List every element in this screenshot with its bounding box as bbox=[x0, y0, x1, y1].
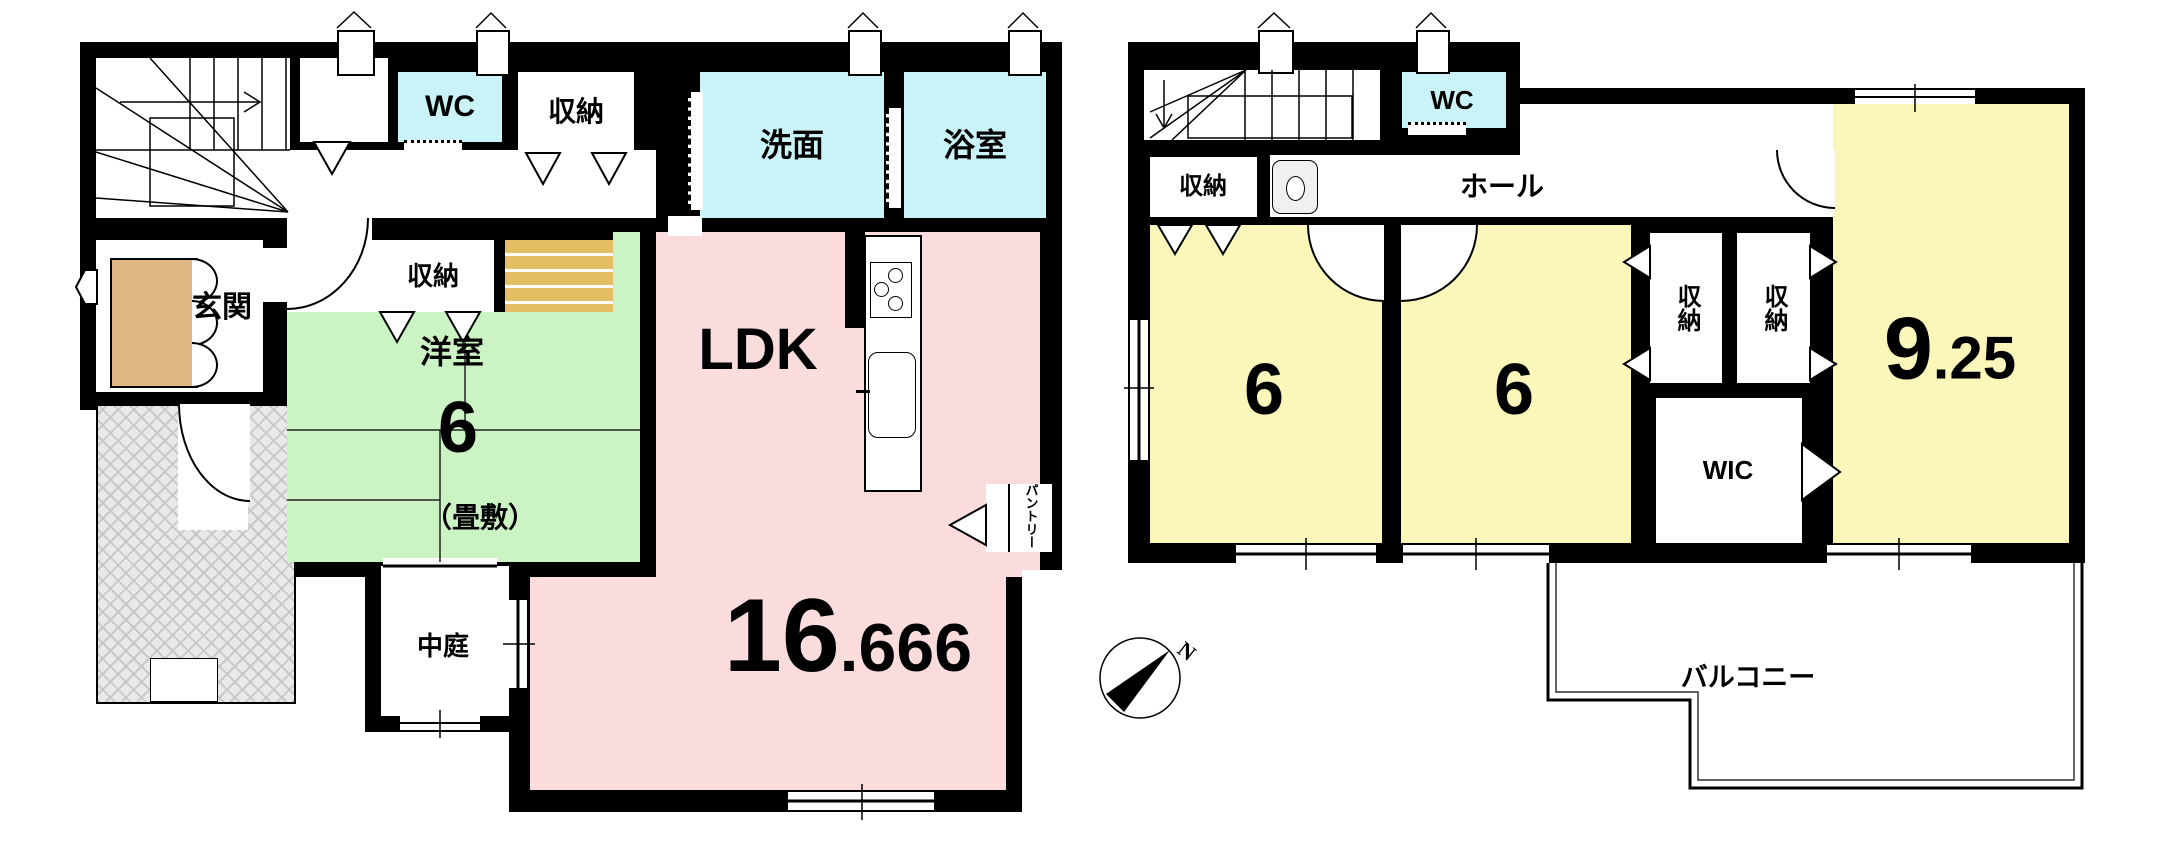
wc-2f-accordion-door bbox=[1408, 122, 1466, 135]
window-925-top bbox=[1855, 90, 1975, 104]
exterior-cut-1f-bottom-right bbox=[1022, 570, 1062, 812]
staircase-2f bbox=[1144, 70, 1380, 140]
stove-burner-icon bbox=[888, 268, 903, 283]
vent-bump bbox=[1008, 30, 1042, 76]
label-ldk: LDK bbox=[698, 321, 817, 379]
sink-faucet-icon bbox=[856, 390, 870, 393]
label-ldk-size: 16.666 bbox=[724, 584, 972, 688]
kitchen-sink-icon bbox=[868, 352, 916, 438]
label-courtyard: 中庭 bbox=[417, 633, 469, 659]
label-room925-size: 9.25 bbox=[1884, 304, 2016, 392]
kitchen-wall-stub bbox=[845, 218, 865, 328]
compass-north-label: N bbox=[1173, 636, 1201, 666]
hall-2f bbox=[1320, 155, 1833, 217]
washbasin-bowl-icon bbox=[1286, 176, 1305, 201]
label-pantry: パントリー bbox=[1025, 484, 1038, 549]
label-wc-2f: WC bbox=[1430, 87, 1473, 113]
label-tatami-note: （畳敷） bbox=[424, 504, 536, 532]
label-entrance: 玄関 bbox=[192, 293, 252, 323]
label-closet-b-2f: 収納 bbox=[1761, 284, 1785, 332]
label-tatami-room: 洋室 bbox=[420, 336, 484, 368]
window-tatami-courtyard bbox=[383, 558, 497, 574]
label-closet-2f: 収納 bbox=[1179, 175, 1227, 199]
window-2f-left-wall bbox=[1130, 320, 1148, 460]
ldk-size-fraction: .666 bbox=[840, 614, 972, 682]
window-ldk-bottom bbox=[788, 792, 934, 810]
room925-size-fraction: .25 bbox=[1933, 328, 2016, 388]
label-room6b-size: 6 bbox=[1494, 354, 1534, 426]
shoe-cabinet bbox=[110, 258, 198, 388]
hallway-1f bbox=[96, 150, 656, 218]
room925-size-integer: 9 bbox=[1884, 304, 1933, 392]
vent-bump bbox=[1416, 30, 1450, 74]
label-tatami-size: 6 bbox=[438, 392, 478, 464]
vent-bump bbox=[848, 30, 882, 76]
tatami-step-strip bbox=[505, 240, 613, 312]
floor-plan: N WC 収納 洗面 浴室 玄関 収納 洋室 6 （畳敷） LDK 16.666… bbox=[0, 0, 2183, 854]
window-room6a-bottom bbox=[1236, 545, 1376, 563]
window-courtyard-bottom bbox=[400, 716, 480, 730]
label-wc-1f: WC bbox=[425, 92, 475, 122]
label-wic: WIC bbox=[1703, 457, 1754, 483]
vent-caret bbox=[337, 12, 1446, 28]
pantry-shelf-line bbox=[1008, 484, 1010, 552]
wc-1f-accordion-door bbox=[404, 140, 462, 153]
hall-to-ldk-opening bbox=[668, 216, 702, 236]
label-closet-a-2f: 収納 bbox=[1674, 284, 1698, 332]
label-hall-2f: ホール bbox=[1460, 173, 1544, 201]
washroom-sliding-door bbox=[688, 92, 703, 210]
window-room6b-bottom bbox=[1403, 545, 1549, 563]
label-closet-a-1f: 収納 bbox=[548, 98, 604, 126]
porch-step-notch bbox=[150, 658, 218, 702]
ldk-size-integer: 16 bbox=[724, 584, 840, 688]
label-room6a-size: 6 bbox=[1244, 354, 1284, 426]
bathroom-sliding-door bbox=[886, 108, 901, 208]
compass-icon: N bbox=[1100, 636, 1201, 718]
label-balcony: バルコニー bbox=[1681, 665, 1815, 692]
window-courtyard-right bbox=[509, 600, 527, 688]
entrance-doorway-gap bbox=[263, 248, 287, 302]
room-tatami-upper-sliver bbox=[613, 232, 640, 312]
label-bathroom: 浴室 bbox=[943, 129, 1007, 161]
vent-bump bbox=[476, 30, 510, 76]
stove-burner-icon bbox=[874, 282, 889, 297]
label-washroom: 洗面 bbox=[760, 129, 824, 161]
vent-bump bbox=[337, 30, 375, 76]
vent-bump bbox=[1258, 30, 1294, 74]
label-closet-b-1f: 収納 bbox=[407, 263, 459, 289]
stove-burner-icon bbox=[888, 296, 903, 311]
room-pantry bbox=[986, 484, 1052, 552]
window-925-bottom bbox=[1827, 545, 1971, 563]
